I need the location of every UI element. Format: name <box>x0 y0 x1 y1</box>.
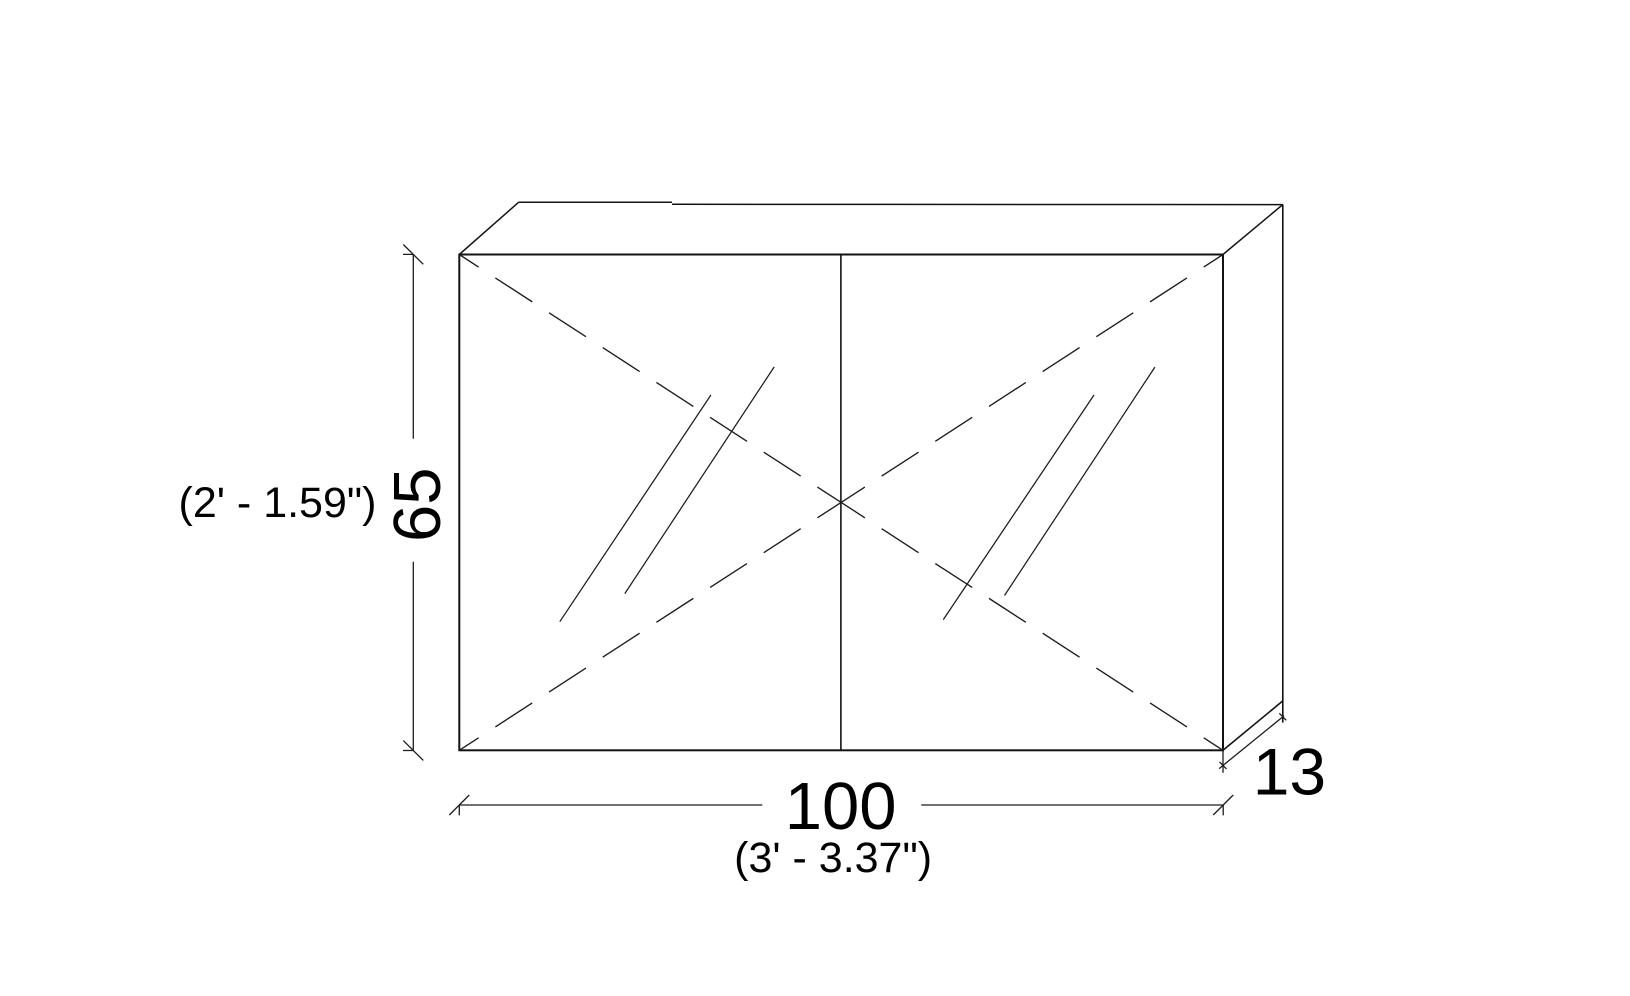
svg-text:(2' - 1.59"): (2' - 1.59") <box>179 479 377 527</box>
svg-text:100: 100 <box>785 769 897 844</box>
svg-text:(3' - 3.37"): (3' - 3.37") <box>734 834 932 882</box>
svg-text:13: 13 <box>1253 734 1326 808</box>
svg-text:65: 65 <box>380 467 455 542</box>
